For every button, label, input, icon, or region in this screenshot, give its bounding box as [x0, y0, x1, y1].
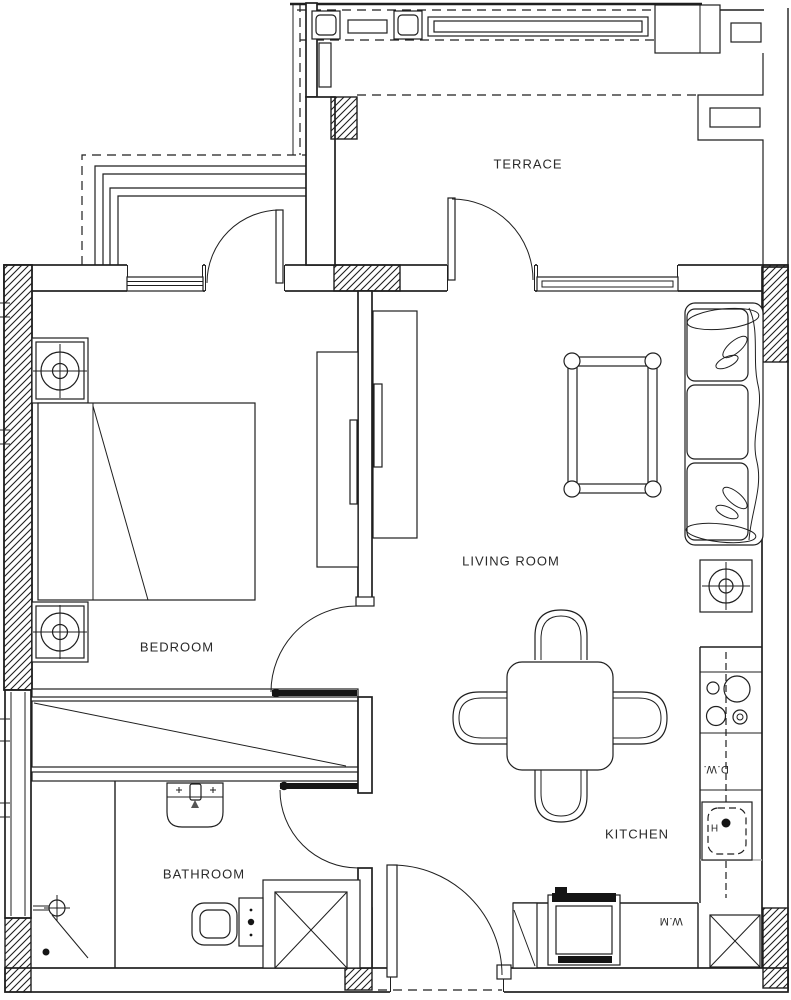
appliance-label-washing-machine: W.M — [659, 915, 683, 927]
service-shaft — [263, 880, 360, 968]
planter — [319, 43, 331, 87]
bedroom-furniture — [32, 338, 358, 662]
planter — [731, 23, 761, 42]
door-swing-arc — [392, 865, 502, 975]
floor-plan-drawing — [0, 0, 791, 1000]
door-swing-arc — [271, 606, 357, 692]
tv-unit-living — [373, 311, 417, 538]
kitchen-base-row — [513, 887, 760, 968]
window-bedroom — [127, 264, 203, 292]
wall-right — [762, 267, 788, 990]
door-swing-arc — [280, 790, 358, 868]
partition-bedroom-living — [358, 291, 372, 605]
ac-unit — [394, 11, 422, 39]
door-leaf — [276, 210, 283, 283]
appliance-label-dishwasher: D.W. — [703, 763, 729, 775]
living-room-furniture — [373, 303, 763, 612]
hatch-bottom-right — [763, 908, 788, 988]
oven-appliance — [548, 887, 620, 965]
room-label-bedroom: BEDROOM — [140, 640, 214, 655]
interior-walls — [32, 291, 502, 977]
entrance-opening — [378, 965, 511, 994]
cooktop — [707, 676, 751, 726]
tv-unit-bedroom — [317, 352, 358, 567]
hatch-right-top — [763, 265, 788, 362]
coffee-table — [564, 353, 661, 497]
shower — [33, 895, 88, 958]
bathroom-door — [280, 782, 358, 868]
nightstand — [32, 602, 88, 662]
dining-table — [507, 662, 613, 770]
appliance-label-sink-hot: H — [710, 822, 718, 833]
dining-chair — [535, 610, 587, 660]
entrance-door — [387, 865, 502, 977]
room-label-living-room: LIVING ROOM — [462, 554, 560, 569]
planter — [348, 20, 387, 33]
dining-chair — [535, 770, 587, 822]
wardrobe-closet — [32, 701, 358, 767]
room-label-terrace: TERRACE — [493, 157, 562, 172]
room-label-bathroom: BATHROOM — [163, 867, 245, 882]
entrance-jamb — [497, 965, 511, 979]
door-leaf — [448, 198, 455, 280]
long-planter — [428, 17, 648, 36]
planter — [710, 108, 760, 127]
side-table-lamp — [700, 560, 752, 612]
door-handle — [272, 689, 280, 697]
toilet — [192, 898, 263, 946]
hatch-top-pier — [334, 265, 400, 291]
washing-machine — [710, 915, 760, 967]
terrace-door-opening-bedroom — [205, 263, 285, 293]
door-leaf — [280, 783, 358, 789]
bed — [38, 403, 255, 600]
door-leaf — [387, 865, 397, 977]
bathroom-sink — [167, 783, 223, 827]
bedroom-door — [271, 606, 357, 697]
dining-set — [453, 610, 667, 822]
ac-unit — [312, 11, 340, 39]
door-handle — [280, 782, 288, 790]
terrace-area — [82, 3, 788, 283]
dining-chair — [453, 692, 508, 744]
floor-drain — [43, 949, 50, 956]
room-label-kitchen: KITCHEN — [605, 827, 669, 842]
window-living — [537, 264, 678, 292]
dining-chair — [613, 692, 667, 744]
neighbor-structure — [655, 5, 788, 267]
faucet — [722, 819, 731, 828]
base-cabinet — [513, 903, 537, 968]
tv-screen — [350, 420, 357, 504]
partition-end-cap — [356, 597, 374, 606]
wall-left-lower — [5, 690, 31, 918]
kitchen-counter — [700, 647, 762, 903]
bathroom-north-wall — [32, 772, 358, 781]
floor-plan: TERRACE BEDROOM LIVING ROOM BATHROOM KIT… — [0, 0, 791, 1000]
sofa — [685, 303, 763, 546]
tv-screen — [374, 384, 382, 467]
hatch-terrace-pier — [331, 97, 357, 139]
hatch-bottom-left — [5, 918, 31, 992]
door-leaf — [272, 690, 357, 696]
hatch-left-wall — [4, 265, 32, 690]
terrace-door-opening-living — [447, 263, 535, 293]
nightstand — [32, 338, 88, 403]
shower-door — [52, 915, 88, 958]
hall-wall-upper — [358, 697, 372, 793]
